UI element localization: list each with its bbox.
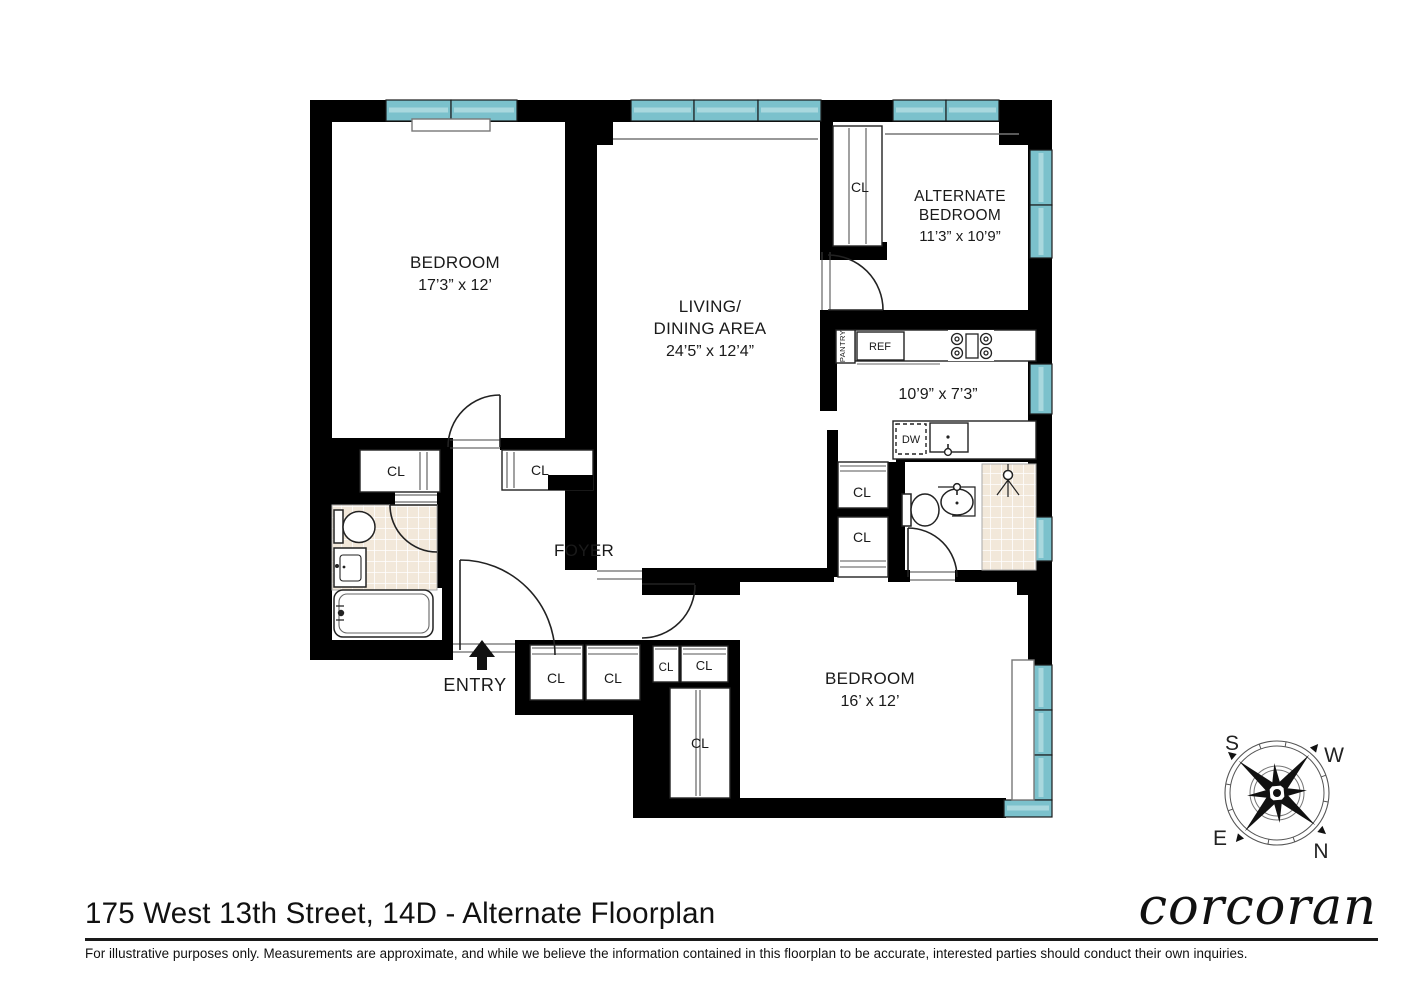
room-kitchen-dims: 10’9” x 7’3” [898, 386, 977, 403]
pantry-label: PANTRY [838, 330, 847, 362]
floorplan-page: BEDROOM 17’3” x 12’ LIVING/ DINING AREA … [0, 0, 1414, 1000]
compass-south: S [1225, 732, 1239, 755]
toilet-tank-icon [902, 494, 911, 526]
room-bedroom1-name: BEDROOM [410, 253, 500, 272]
room-bedroom2-name: BEDROOM [825, 669, 915, 688]
floorplan-drawing: BEDROOM 17’3” x 12’ LIVING/ DINING AREA … [0, 0, 1414, 1000]
entry-label: ENTRY [443, 675, 506, 695]
radiator-bedroom2 [1012, 660, 1034, 800]
room-altbed-dims: 11’3” x 10’9” [919, 228, 1000, 245]
divider-rule [85, 938, 1378, 941]
room-bedroom2-dims: 16’ x 12’ [841, 693, 900, 710]
door-bedroom1 [448, 395, 500, 447]
refrigerator-label: REF [869, 341, 891, 353]
closet-label: CL [604, 670, 622, 686]
compass-star [1225, 741, 1328, 844]
room-living-dims: 24’5” x 12’4” [666, 343, 754, 360]
door-bathroom-right [908, 528, 957, 577]
sill-lines [613, 134, 1019, 139]
brand-logo: corcoran [1138, 878, 1377, 937]
compass-east: E [1213, 827, 1227, 850]
closet-label: CL [853, 484, 871, 500]
room-altbed-name2: BEDROOM [919, 207, 1001, 224]
room-bedroom1-dims: 17’3” x 12’ [418, 277, 492, 294]
room-altbed-name1: ALTERNATE [914, 188, 1006, 205]
toilet-tank-icon [334, 510, 343, 543]
room-living-name2: DINING AREA [654, 319, 767, 338]
closet-label: CL [387, 463, 405, 479]
closet-label: CL [547, 670, 565, 686]
tub-faucet-icon [338, 610, 344, 616]
disclaimer-text: For illustrative purposes only. Measurem… [85, 946, 1385, 961]
room-living-name1: LIVING/ [679, 297, 742, 316]
dishwasher-label: DW [902, 434, 921, 446]
door-alt-bedroom [828, 255, 883, 310]
closets [360, 126, 888, 798]
compass-north: N [1313, 840, 1328, 863]
closet-label: CL [851, 179, 869, 195]
closet-label: CL [531, 462, 549, 478]
toilet-icon [911, 494, 939, 526]
closet-hall-2 [838, 517, 888, 577]
room-foyer-name: FOYER [554, 541, 614, 560]
radiator-bedroom1 [412, 119, 490, 131]
closet-label: CL [696, 658, 713, 673]
toilet-icon [343, 512, 375, 543]
closet-label: CL [853, 529, 871, 545]
compass-rose: S W E N [1213, 732, 1344, 863]
closet-label: CL [691, 735, 709, 751]
closet-label: CL [659, 662, 674, 674]
compass-west: W [1324, 744, 1344, 767]
